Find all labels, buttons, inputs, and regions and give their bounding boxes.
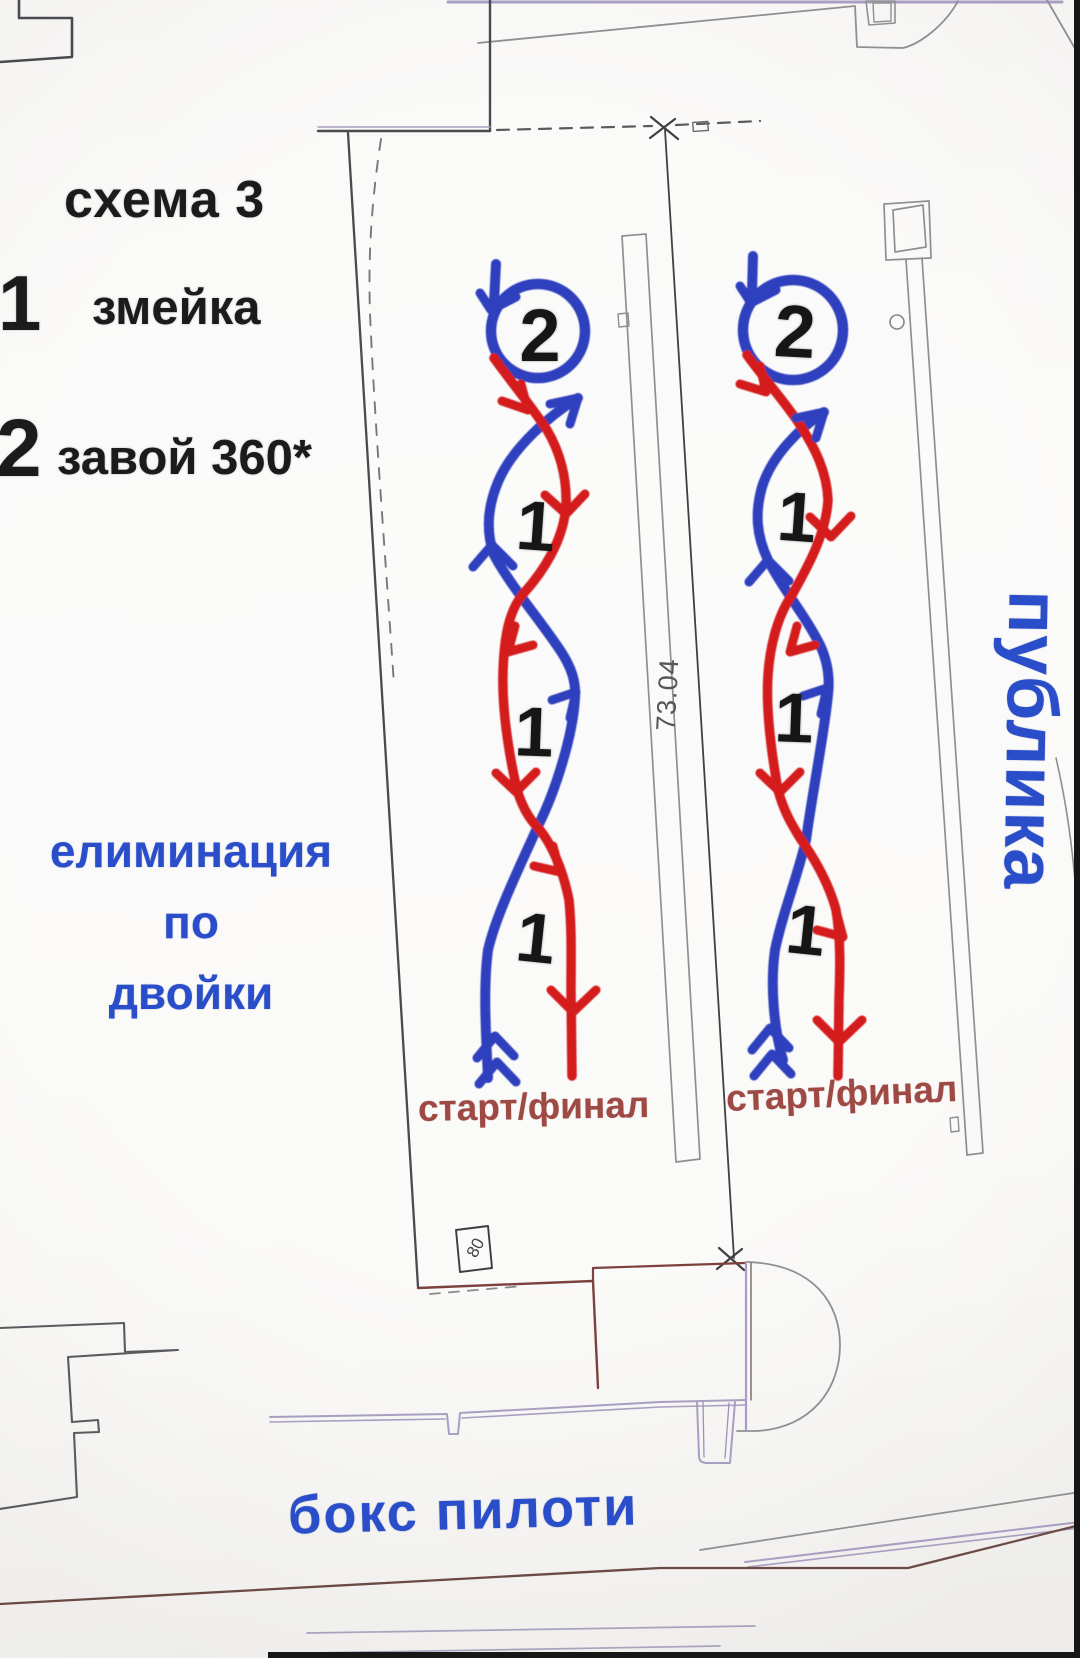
elimination-note-line3: двойки	[28, 958, 354, 1029]
legend-2-label: завой 360*	[57, 430, 312, 486]
loop-entry-stub-right	[752, 256, 753, 292]
route-left-number-0: 2	[519, 299, 560, 373]
route-left-number-3: 1	[513, 901, 559, 975]
elimination-note-line1: елиминация	[28, 816, 354, 887]
legend-2-number: 2	[0, 402, 42, 496]
dimension-label: 73.04	[649, 634, 686, 755]
route-right-number-0: 2	[773, 294, 818, 370]
start-finish-left: старт/финал	[418, 1084, 650, 1130]
scheme-title: схема 3	[64, 170, 265, 230]
elimination-note-line2: по	[28, 887, 354, 958]
loop-entry-stub-left	[494, 264, 496, 302]
audience-label: публика	[989, 569, 1075, 910]
legend-1-label: змейка	[92, 280, 261, 336]
route-right-number-2: 1	[773, 682, 814, 753]
pits-label: бокс пилоти	[287, 1475, 639, 1546]
route-right-number-1: 1	[775, 481, 819, 554]
route-left-number-2: 1	[513, 696, 554, 767]
route-right-number-3: 1	[783, 893, 829, 967]
legend-1-number: 1	[0, 258, 41, 349]
track-scheme-photo: схема 3 1 змейка 2 завой 360* елиминация…	[0, 0, 1080, 1658]
elimination-note: елиминация по двойки	[28, 816, 354, 1029]
route-left-number-1: 1	[514, 490, 558, 563]
